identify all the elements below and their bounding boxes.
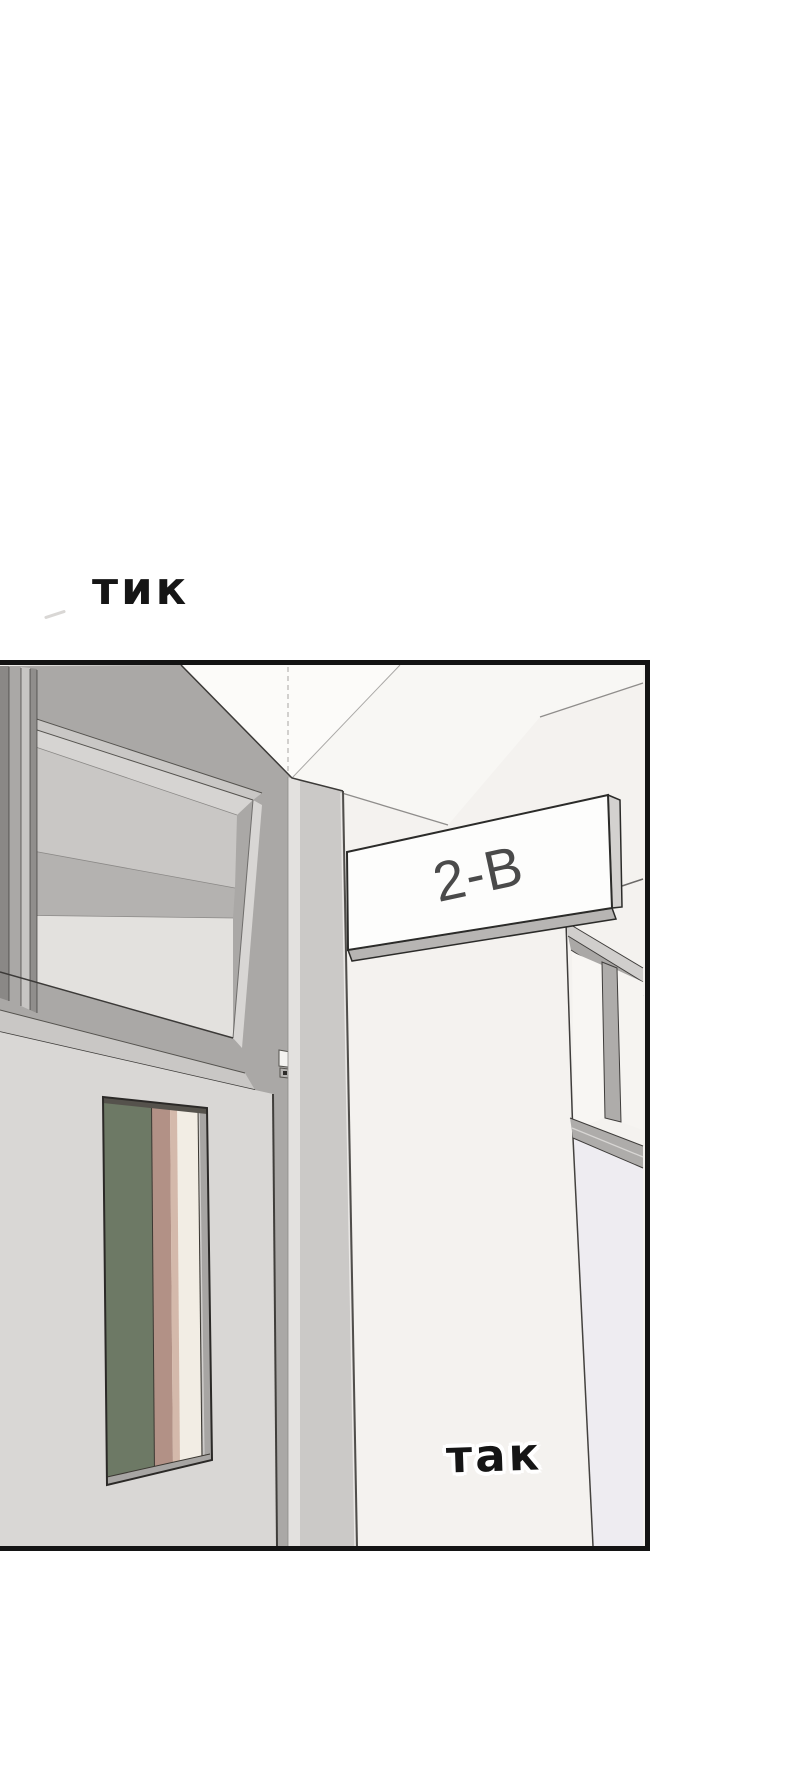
classroom-door	[0, 1032, 297, 1546]
comic-page: тик	[0, 0, 800, 1769]
pencil-smudge-mark	[44, 610, 66, 620]
distant-window-pane-left	[572, 952, 604, 1130]
sfx-tock-text: так	[445, 1427, 543, 1483]
hallway-illustration	[0, 665, 645, 1546]
pillar-highlight-strip	[288, 777, 300, 1546]
comic-panel: так	[0, 660, 650, 1551]
left-frame-post	[0, 666, 37, 1013]
door-window-green-pane	[103, 1097, 155, 1485]
sfx-tick-text: тик	[92, 562, 189, 615]
door-window	[103, 1097, 212, 1485]
door-window-tan-strip	[152, 1102, 173, 1474]
